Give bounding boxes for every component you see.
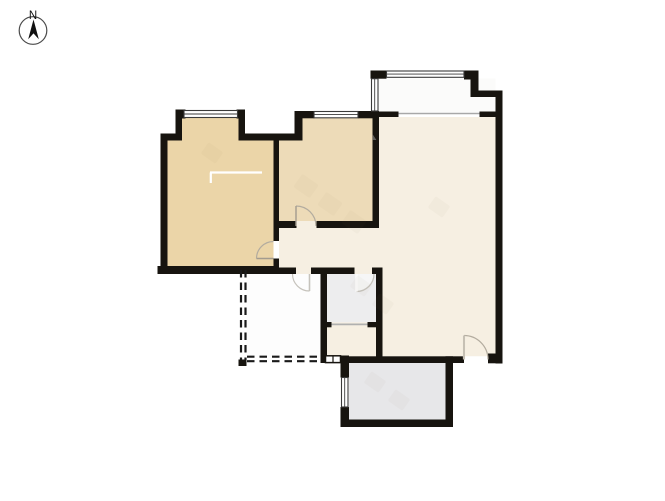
svg-text:N: N [29,10,37,22]
